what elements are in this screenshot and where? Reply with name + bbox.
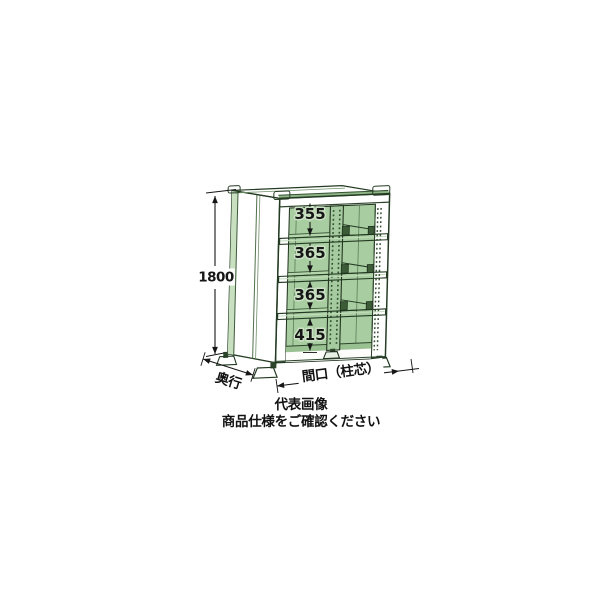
gap-label-3: 365 bbox=[294, 286, 325, 304]
height-label: 1800 bbox=[198, 270, 234, 286]
leveling-foot-front-left bbox=[253, 362, 277, 379]
width-label: 間口（柱芯） bbox=[301, 359, 380, 385]
caption-line1: 代表画像 bbox=[274, 396, 329, 413]
gap-label-2: 365 bbox=[294, 244, 325, 262]
caption-line2: 商品仕様をご確認ください bbox=[222, 413, 380, 430]
rack-diagram: 355 365 365 415 1800 奥行 bbox=[0, 0, 600, 600]
left-side-panel bbox=[228, 188, 281, 364]
caption: 代表画像 商品仕様をご確認ください bbox=[222, 396, 380, 430]
gap-label-1: 355 bbox=[294, 205, 325, 223]
leveling-foot-back-right bbox=[323, 351, 339, 358]
product-image: 355 365 365 415 1800 奥行 bbox=[0, 0, 600, 600]
gap-label-4: 415 bbox=[294, 326, 325, 344]
width-dimension: 間口（柱芯） bbox=[276, 358, 419, 393]
top-panel bbox=[232, 184, 390, 201]
depth-label: 奥行 bbox=[213, 369, 244, 393]
depth-dimension: 奥行 bbox=[201, 352, 255, 393]
